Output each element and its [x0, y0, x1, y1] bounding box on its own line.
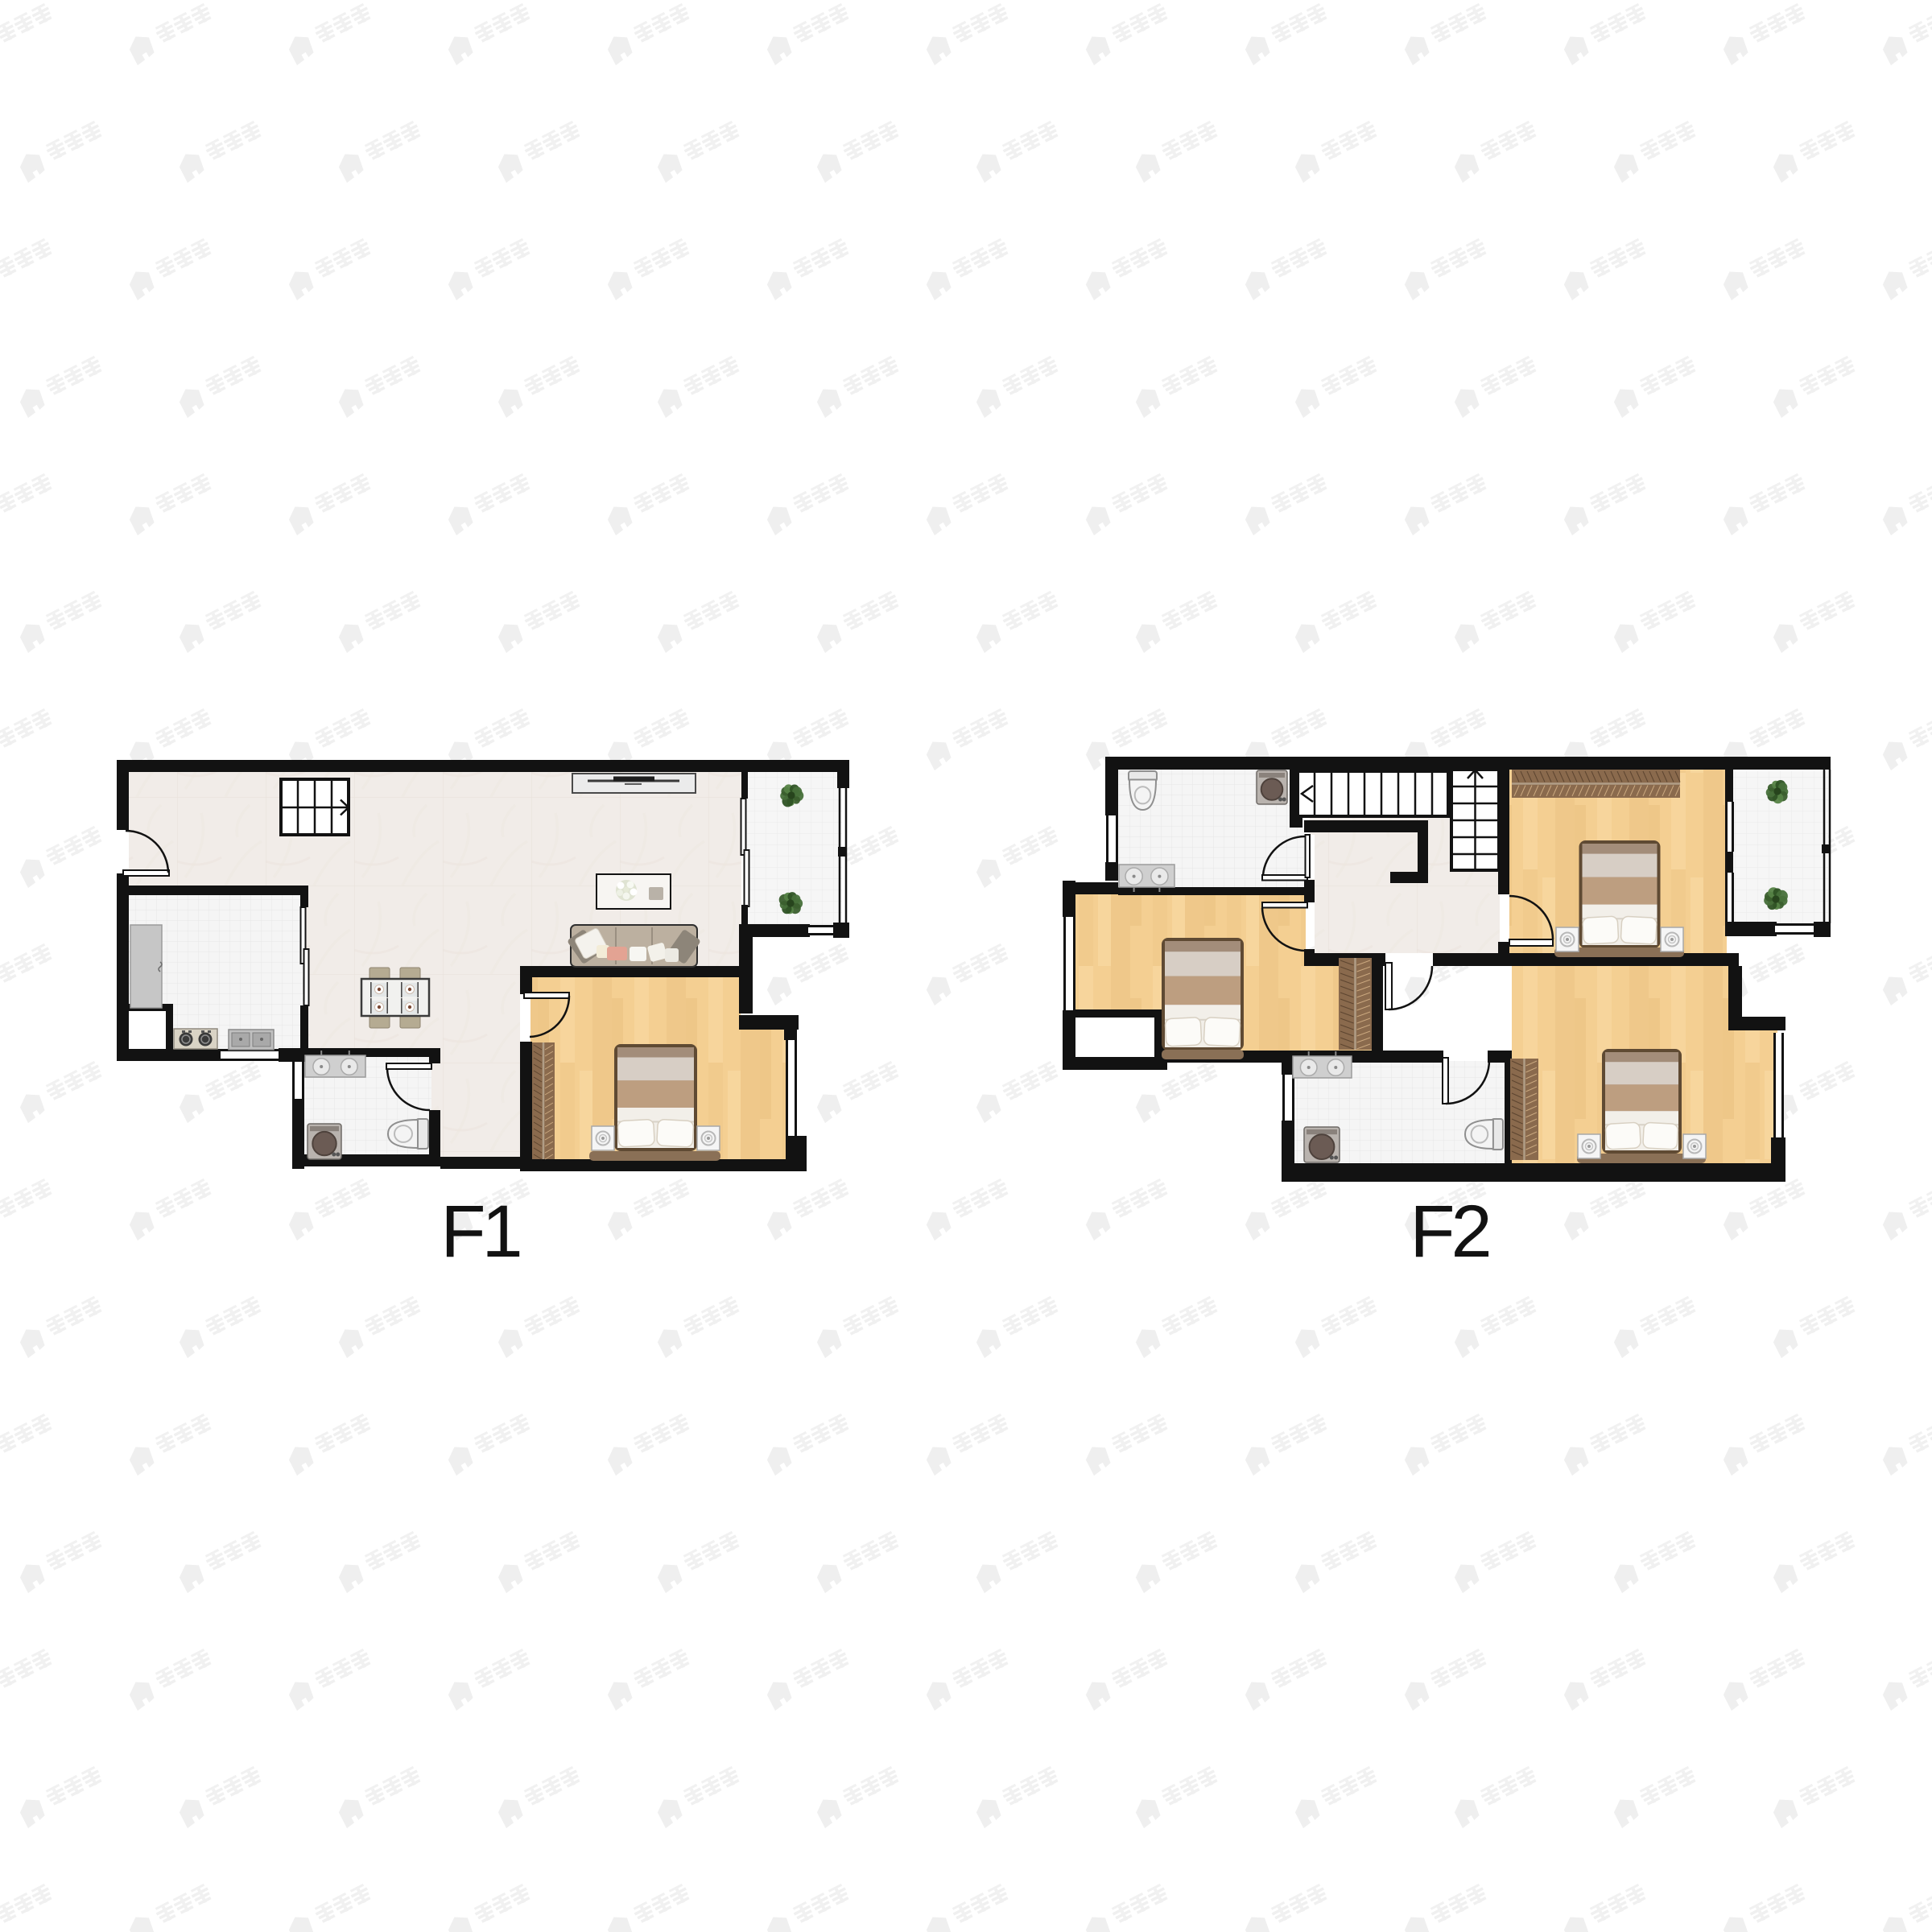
svg-text:F1: F1	[440, 1191, 519, 1273]
svg-text:F2: F2	[1410, 1191, 1488, 1273]
